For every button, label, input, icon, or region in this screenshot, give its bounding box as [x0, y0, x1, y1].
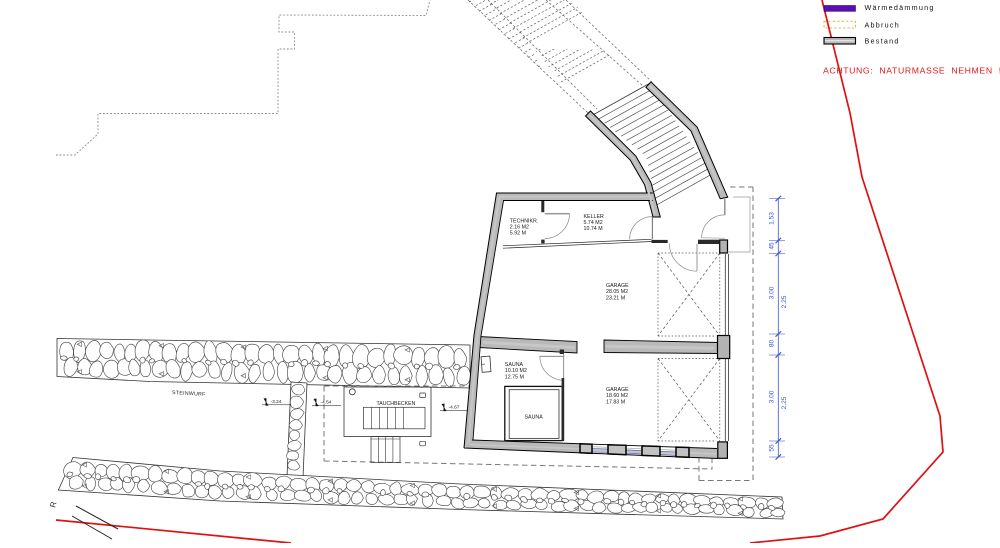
svg-text:-3.24: -3.24	[271, 399, 282, 405]
svg-text:-4.54: -4.54	[321, 400, 332, 406]
svg-text:GARAGE: GARAGE	[606, 283, 629, 289]
svg-text:3.00: 3.00	[769, 390, 776, 403]
svg-text:ACHTUNG: NATURMASSE NEHMEN: ACHTUNG: NATURMASSE NEHMEN !	[823, 66, 1000, 76]
svg-text:55: 55	[769, 444, 776, 452]
svg-text:17.83 M: 17.83 M	[606, 399, 625, 405]
svg-text:SAUNA: SAUNA	[505, 362, 524, 368]
svg-text:GARAGE: GARAGE	[606, 387, 629, 393]
svg-text:Wärmedämmung: Wärmedämmung	[865, 3, 935, 12]
svg-text:80: 80	[769, 340, 776, 348]
svg-text:23.21 M: 23.21 M	[606, 295, 625, 301]
svg-text:TAUCHBECKEN: TAUCHBECKEN	[377, 401, 416, 407]
svg-text:KELLER: KELLER	[584, 214, 604, 220]
svg-text:3.00: 3.00	[769, 286, 776, 299]
svg-text:2.25: 2.25	[781, 295, 788, 308]
svg-text:SAUNA: SAUNA	[525, 415, 544, 421]
svg-text:-4.67: -4.67	[449, 405, 460, 411]
svg-text:Abbruch: Abbruch	[865, 21, 901, 30]
svg-text:TECHNIKR.: TECHNIKR.	[510, 218, 539, 224]
svg-text:10.74 M: 10.74 M	[584, 226, 603, 232]
svg-text:10.10 M2: 10.10 M2	[505, 368, 527, 374]
svg-text:45: 45	[769, 242, 776, 250]
svg-text:12.75 M: 12.75 M	[505, 374, 524, 380]
svg-text:18.60 M2: 18.60 M2	[606, 393, 628, 399]
svg-text:5.74 M2: 5.74 M2	[584, 220, 603, 226]
svg-text:2.25: 2.25	[781, 396, 788, 409]
svg-text:2.16 M2: 2.16 M2	[510, 224, 529, 230]
svg-text:5.92 M: 5.92 M	[510, 231, 526, 237]
svg-text:1.53: 1.53	[769, 212, 776, 225]
svg-text:28.05 M2: 28.05 M2	[606, 289, 628, 295]
svg-text:Bestand: Bestand	[865, 37, 900, 46]
